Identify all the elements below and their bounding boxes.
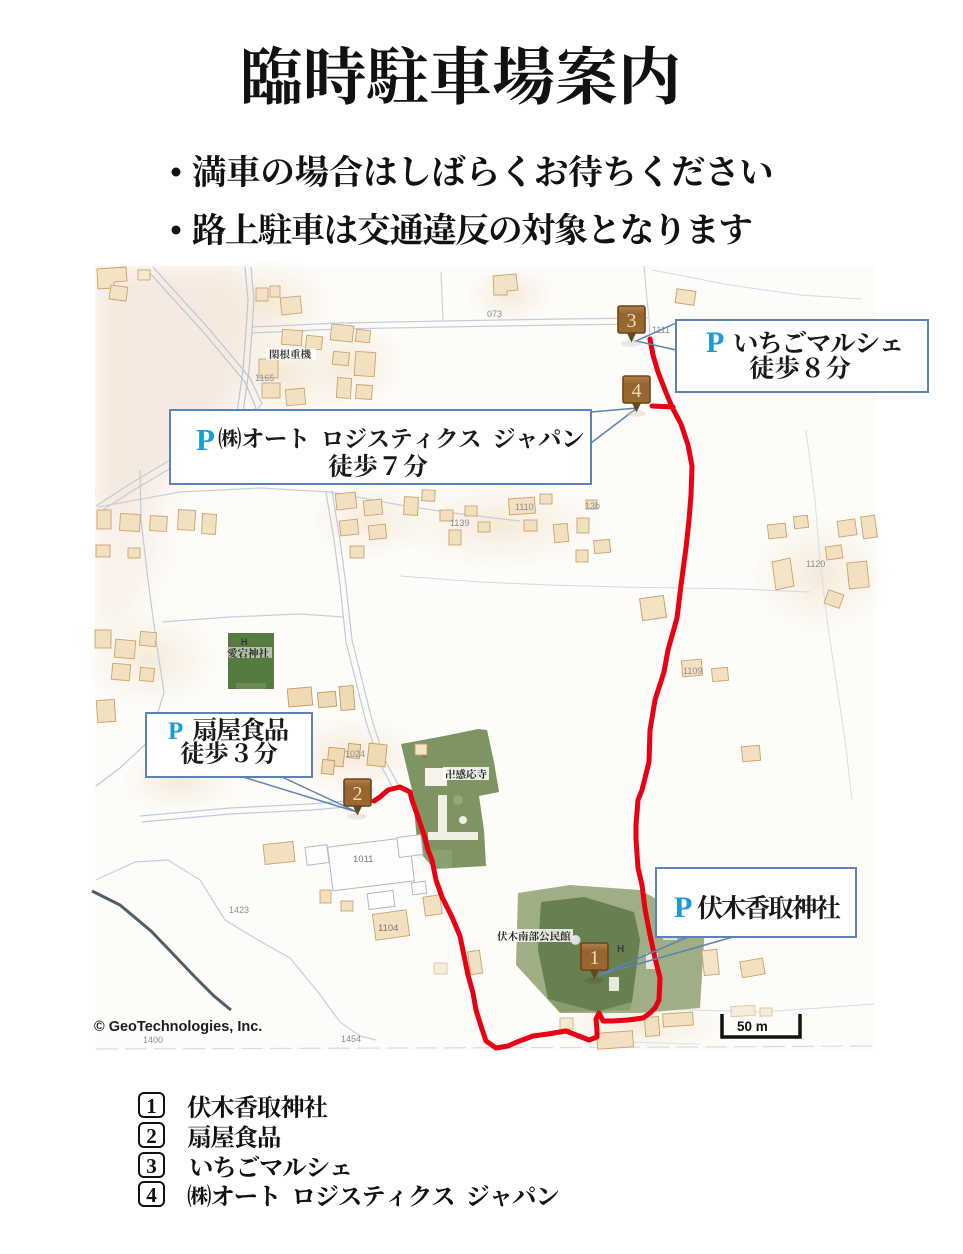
svg-text:1400: 1400 — [143, 1035, 163, 1045]
svg-text:1: 1 — [590, 947, 600, 969]
svg-text:1120: 1120 — [806, 559, 825, 569]
svg-text:3: 3 — [627, 310, 637, 332]
svg-text:© GeoTechnologies, Inc.: © GeoTechnologies, Inc. — [94, 1019, 262, 1035]
svg-text:1165: 1165 — [255, 373, 274, 383]
svg-text:1423: 1423 — [229, 905, 249, 915]
svg-text:1104: 1104 — [378, 923, 398, 934]
svg-text:P: P — [706, 326, 724, 359]
svg-text:H: H — [617, 944, 624, 955]
svg-text:073: 073 — [487, 309, 502, 319]
svg-text:50 m: 50 m — [737, 1019, 768, 1034]
svg-text:3: 3 — [146, 1154, 157, 1178]
svg-text:2: 2 — [146, 1124, 157, 1148]
svg-text:H: H — [241, 637, 248, 647]
svg-text:13b: 13b — [585, 501, 600, 511]
svg-text:⚪: ⚪ — [570, 934, 581, 945]
svg-text:1454: 1454 — [341, 1034, 361, 1044]
svg-text:1109: 1109 — [683, 666, 702, 676]
svg-text:P: P — [168, 718, 183, 745]
svg-text:4: 4 — [632, 380, 642, 402]
svg-text:1024: 1024 — [345, 749, 365, 759]
svg-text:2: 2 — [353, 783, 363, 805]
svg-text:1011: 1011 — [353, 854, 373, 865]
svg-text:1110: 1110 — [515, 502, 534, 512]
svg-text:4: 4 — [146, 1183, 157, 1207]
svg-text:P: P — [674, 891, 692, 924]
svg-text:1: 1 — [146, 1094, 157, 1118]
svg-text:1139: 1139 — [450, 518, 469, 528]
svg-text:P: P — [196, 422, 215, 457]
